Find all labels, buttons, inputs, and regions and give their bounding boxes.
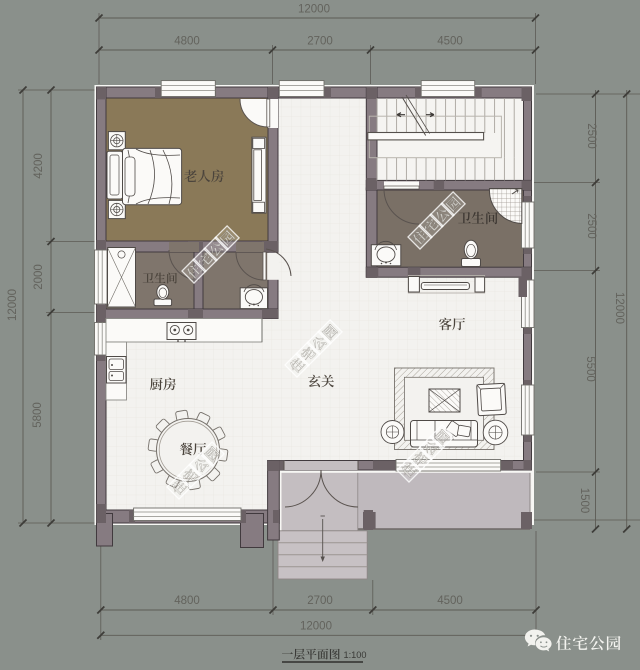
svg-text:12000: 12000: [7, 289, 19, 321]
svg-text:2500: 2500: [585, 213, 597, 239]
svg-text:5800: 5800: [32, 402, 44, 428]
svg-text:5500: 5500: [584, 356, 596, 382]
svg-text:4500: 4500: [437, 36, 463, 48]
svg-text:2000: 2000: [33, 264, 45, 290]
svg-text:12000: 12000: [613, 292, 625, 324]
svg-text:4800: 4800: [174, 36, 200, 48]
svg-text:4500: 4500: [437, 595, 463, 607]
svg-text:1:100: 1:100: [344, 650, 367, 660]
svg-text:2700: 2700: [307, 595, 333, 607]
svg-text:4200: 4200: [33, 153, 45, 179]
svg-text:12000: 12000: [298, 4, 330, 16]
svg-text:1500: 1500: [578, 488, 590, 514]
svg-text:2700: 2700: [307, 36, 333, 48]
svg-text:12000: 12000: [300, 621, 332, 633]
svg-text:2500: 2500: [585, 123, 597, 149]
svg-text:4800: 4800: [174, 595, 200, 607]
